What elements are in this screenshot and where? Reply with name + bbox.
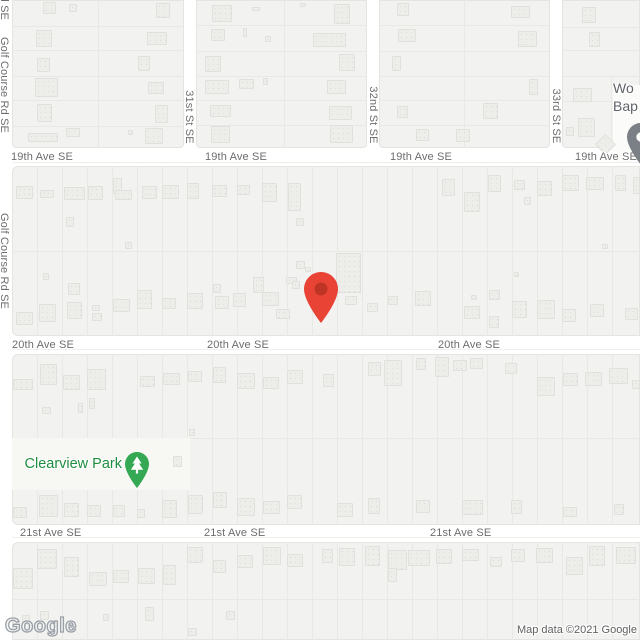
lot-line [437, 354, 438, 525]
building [590, 304, 604, 317]
building [239, 79, 254, 89]
building [215, 296, 229, 309]
building [514, 272, 519, 277]
lot-line [12, 251, 640, 252]
building [585, 372, 602, 386]
lot-line [312, 542, 313, 640]
building [313, 33, 346, 47]
map-attribution: Map data ©2021 Google [517, 624, 637, 636]
building [138, 568, 155, 584]
building [64, 557, 79, 577]
building [87, 369, 106, 390]
lot-line [379, 125, 550, 126]
building [392, 56, 401, 71]
building [16, 312, 33, 325]
building [39, 304, 56, 322]
lot-line [162, 542, 163, 640]
building [488, 175, 501, 192]
building [602, 244, 608, 249]
building [263, 377, 279, 389]
building [397, 3, 409, 16]
building [162, 298, 176, 309]
building [537, 300, 555, 319]
lot-line [337, 354, 338, 525]
building [537, 377, 555, 396]
lot-line [487, 542, 488, 640]
building [416, 129, 429, 141]
building [287, 554, 303, 567]
lot-line [312, 354, 313, 525]
lot-line [196, 76, 367, 77]
building [137, 509, 145, 518]
building [566, 557, 583, 575]
street-label: 33rd St SE [550, 89, 562, 144]
building [397, 106, 408, 118]
street-label: 19th Ave SE [205, 151, 267, 163]
building [398, 29, 416, 42]
building [578, 118, 595, 137]
building [300, 3, 306, 7]
building [524, 197, 531, 205]
building [35, 78, 58, 97]
building [505, 363, 517, 374]
building [187, 183, 199, 199]
building [89, 572, 107, 586]
building [156, 3, 170, 18]
lot-line [412, 354, 413, 525]
church-pin[interactable] [627, 123, 640, 165]
street-label: 19th Ave SE [11, 151, 73, 163]
street-label: 21st Ave SE [20, 527, 81, 539]
building [113, 570, 129, 583]
building [616, 547, 636, 564]
building [187, 293, 203, 309]
building [40, 190, 54, 198]
building [512, 301, 527, 318]
building [92, 313, 102, 321]
building [514, 180, 525, 190]
building [163, 373, 180, 385]
lot-line [337, 542, 338, 640]
building [142, 186, 157, 199]
building [173, 456, 182, 467]
building [115, 190, 132, 200]
building [416, 358, 426, 370]
building [78, 403, 83, 413]
lot-line [562, 50, 640, 51]
building [562, 175, 579, 191]
building [287, 370, 303, 384]
lot-line [12, 76, 184, 77]
building [28, 133, 58, 142]
building [66, 128, 80, 137]
building [213, 367, 226, 383]
building [213, 560, 226, 573]
building [562, 309, 576, 322]
building [633, 177, 640, 194]
building [537, 181, 552, 196]
building [625, 308, 638, 320]
building [511, 549, 525, 562]
poi-church-label-line2: Bap [613, 97, 638, 115]
building [416, 500, 430, 513]
building [614, 504, 624, 515]
building [237, 498, 255, 516]
lot-line [12, 126, 184, 127]
building [388, 550, 407, 570]
building [323, 374, 334, 387]
building [189, 429, 195, 436]
building [442, 179, 455, 196]
building [87, 505, 101, 517]
building [37, 58, 50, 72]
building [345, 296, 357, 305]
building [187, 547, 203, 563]
building [339, 54, 355, 71]
building [415, 291, 431, 306]
lot-line [562, 76, 640, 77]
building [147, 32, 167, 45]
building [337, 503, 353, 517]
building [145, 128, 163, 144]
building [470, 358, 483, 369]
building [39, 495, 58, 517]
building [518, 31, 537, 47]
building [263, 547, 281, 565]
building [566, 127, 574, 136]
building [13, 507, 27, 518]
building [103, 614, 109, 621]
building [464, 306, 480, 319]
building [435, 357, 449, 377]
building [137, 290, 152, 309]
lot-line [137, 542, 138, 640]
building [330, 125, 353, 143]
building [615, 175, 626, 191]
building [188, 371, 202, 382]
building [408, 550, 430, 566]
street-label: Golf Course Rd SE [0, 0, 10, 20]
building [213, 492, 227, 508]
lot-line [87, 542, 88, 640]
building [529, 79, 538, 95]
building [89, 398, 95, 409]
building [388, 296, 398, 305]
building [252, 7, 260, 11]
building [188, 628, 197, 636]
lot-line [362, 542, 363, 640]
building [237, 373, 255, 389]
building [211, 126, 230, 143]
red-marker-pin[interactable] [304, 272, 338, 323]
building [489, 290, 500, 300]
building [511, 500, 522, 514]
lot-line [379, 51, 550, 52]
building [262, 292, 279, 306]
street-label: 20th Ave SE [207, 339, 269, 351]
lot-line [12, 50, 184, 51]
road-centerline [12, 349, 640, 350]
lot-line [12, 100, 184, 101]
building [138, 56, 150, 71]
building [288, 183, 301, 211]
building [582, 7, 596, 23]
building [471, 295, 477, 300]
street-label: Golf Course Rd SE [0, 213, 10, 309]
lot-line [12, 26, 184, 27]
building [287, 495, 302, 509]
street-label: 20th Ave SE [12, 339, 74, 351]
building [16, 186, 33, 199]
building [367, 303, 378, 312]
building [462, 500, 483, 515]
building [339, 548, 355, 566]
building [163, 565, 176, 585]
lot-line [611, 76, 612, 148]
building [162, 500, 177, 518]
building [436, 549, 452, 564]
building [237, 555, 253, 568]
building [205, 56, 221, 72]
building [589, 32, 600, 47]
building [536, 548, 553, 563]
lot-line [379, 100, 550, 101]
building [210, 105, 231, 117]
building [464, 192, 480, 212]
map-canvas[interactable]: 19th Ave SE19th Ave SE19th Ave SE19th Av… [0, 0, 640, 640]
poi-park-label[interactable]: Clearview Park [25, 456, 123, 472]
building [253, 277, 264, 293]
building [162, 185, 179, 199]
building [88, 186, 103, 200]
building [212, 5, 232, 22]
building [388, 568, 397, 582]
building [589, 546, 605, 566]
building [64, 503, 79, 517]
lot-line [379, 25, 550, 26]
building [276, 309, 290, 319]
building [68, 283, 80, 295]
building [13, 379, 33, 390]
building [13, 568, 33, 589]
building [113, 299, 130, 312]
lot-line [112, 542, 113, 640]
building [37, 104, 52, 122]
building [263, 78, 268, 85]
building [140, 376, 155, 387]
park-pin[interactable] [125, 452, 149, 488]
building [327, 80, 346, 94]
building [155, 105, 168, 123]
street-label: 31st St SE [183, 90, 195, 143]
poi-church-label[interactable]: Wo Bap [613, 79, 638, 115]
building [462, 549, 479, 561]
lot-line [196, 100, 367, 101]
poi-church-label-line1: Wo [613, 79, 638, 97]
building [322, 549, 333, 563]
building [483, 103, 498, 119]
lot-line [562, 27, 640, 28]
lot-line [379, 76, 550, 77]
road-centerline [12, 162, 640, 163]
street-label: Golf Course Rd SE [0, 37, 10, 133]
building [296, 218, 304, 226]
building [365, 546, 380, 566]
building [292, 281, 300, 289]
building [92, 305, 100, 311]
building [296, 261, 305, 269]
building [243, 28, 247, 37]
building [145, 607, 154, 621]
building [40, 364, 57, 385]
building [262, 183, 277, 202]
building [205, 80, 229, 94]
street-label: 19th Ave SE [390, 151, 452, 163]
building [42, 407, 51, 414]
building [67, 302, 82, 319]
building [148, 82, 164, 94]
building [632, 380, 640, 389]
building [188, 495, 203, 514]
lot-line [12, 599, 640, 600]
building [609, 368, 628, 384]
street-label: 21st Ave SE [430, 527, 491, 539]
lot-line [362, 354, 363, 525]
building [237, 185, 250, 195]
building [64, 187, 85, 200]
building [563, 507, 577, 517]
building [586, 177, 604, 190]
building [43, 273, 49, 280]
street-label: 20th Ave SE [438, 339, 500, 351]
road-centerline [12, 537, 640, 538]
building [263, 501, 280, 514]
building [37, 549, 57, 569]
building [212, 185, 227, 197]
building [233, 293, 246, 307]
building [511, 6, 530, 18]
building [489, 316, 499, 328]
building [456, 129, 470, 142]
building [211, 29, 225, 41]
building [384, 360, 402, 386]
building [563, 373, 578, 386]
lot-line [196, 51, 367, 52]
building [226, 611, 235, 620]
building [368, 362, 381, 376]
building [43, 2, 56, 14]
building [329, 106, 352, 120]
building [113, 505, 125, 517]
lot-line [487, 354, 488, 525]
building [63, 375, 80, 390]
building [336, 253, 361, 293]
street-label: 32nd St SE [367, 86, 379, 143]
building [490, 557, 502, 567]
lot-line [196, 25, 367, 26]
building [573, 88, 592, 102]
street-label: 21st Ave SE [204, 527, 265, 539]
building [125, 242, 132, 249]
building [128, 130, 133, 135]
building [368, 498, 380, 514]
google-logo[interactable]: Google [5, 615, 77, 638]
building [36, 30, 52, 47]
building [334, 4, 350, 24]
building [453, 360, 467, 371]
lot-line [212, 542, 213, 640]
building [265, 36, 271, 42]
building [69, 4, 77, 12]
building [213, 284, 221, 293]
building [66, 217, 74, 227]
